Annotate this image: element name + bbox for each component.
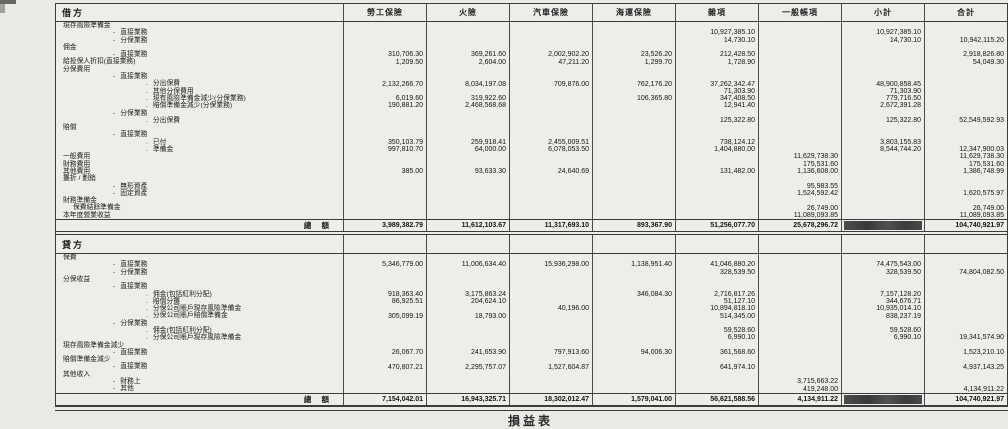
- column-rule-cell: [343, 235, 426, 253]
- total-cell-value: 25,678,296.72: [758, 220, 841, 231]
- cell-value: 1,136,608.00: [758, 168, 841, 175]
- total-cell-value: 3,989,382.79: [343, 220, 426, 231]
- cell-value: [426, 269, 509, 276]
- cell-value: [758, 73, 841, 80]
- row-label: 攤折 / 劃銷: [56, 175, 343, 182]
- row-label-text: 分保業務: [120, 320, 147, 327]
- row-label: -分保業務: [56, 110, 343, 117]
- table-row: 保費: [56, 254, 1007, 261]
- cell-value: [841, 371, 924, 378]
- cell-value: [924, 131, 1007, 138]
- cell-value: [509, 212, 592, 219]
- income-statement-table: 借方 勞工保險火險汽車保險海運保險雜項一般帳項小計合計 現存風險準備金-直接業務…: [55, 3, 1008, 407]
- row-label: .佣金(包括紅利分配): [56, 291, 343, 298]
- cell-value: [509, 312, 592, 319]
- indent-bullet: .: [146, 312, 148, 319]
- indent-bullet: -: [113, 349, 115, 356]
- cell-value: [758, 305, 841, 312]
- indent-bullet: .: [146, 80, 148, 87]
- row-label: 現存風險準備金: [56, 22, 343, 29]
- cell-value: 11,089,093.85: [758, 212, 841, 219]
- cell-value: [509, 37, 592, 44]
- redaction-block: [844, 221, 922, 230]
- row-label: 財務費用: [56, 161, 343, 168]
- credit-section-header: 貸方: [56, 235, 343, 253]
- credit-rows: 保費-直接業務5,346,779.0011,006,634.4015,936,2…: [56, 254, 1007, 393]
- cell-value: 310,706.30: [343, 51, 426, 58]
- cell-value: 6,990.10: [675, 334, 758, 341]
- cell-value: [841, 58, 924, 65]
- cell-value: [758, 117, 841, 124]
- cell-value: 10,935,014.10: [841, 305, 924, 312]
- row-label-text: 分出保費: [153, 80, 180, 87]
- cell-value: 125,322.80: [675, 117, 758, 124]
- column-header: 海運保險: [592, 4, 675, 21]
- table-row: .分保公司賬戶現存風險準備金6,990.106,990.1019,341,574…: [56, 334, 1007, 341]
- cell-value: [426, 183, 509, 190]
- table-row: 佣金: [56, 44, 1007, 51]
- cell-value: [426, 66, 509, 73]
- row-label-text: 現存風險準備金: [63, 22, 111, 29]
- cell-value: [675, 197, 758, 204]
- cell-value: [426, 342, 509, 349]
- cell-value: [758, 44, 841, 51]
- row-label-text: 直接業務: [120, 131, 147, 138]
- cell-value: [592, 190, 675, 197]
- cell-value: [758, 334, 841, 341]
- cell-value: [343, 342, 426, 349]
- cell-value: [758, 363, 841, 370]
- cell-value: [675, 131, 758, 138]
- cell-value: 361,568.60: [675, 349, 758, 356]
- row-label-text: 其他收入: [63, 371, 90, 378]
- row-label: .已付: [56, 139, 343, 146]
- row-label: -直接業務: [56, 73, 343, 80]
- cell-value: 2,295,757.07: [426, 363, 509, 370]
- cell-value: 40,196.00: [509, 305, 592, 312]
- cell-value: [592, 44, 675, 51]
- cell-value: [758, 254, 841, 261]
- cell-value: [924, 80, 1007, 87]
- table-row: -固定資產1,524,592.421,620,575.97: [56, 190, 1007, 197]
- cell-value: [924, 73, 1007, 80]
- row-label-text: 其他: [120, 385, 134, 392]
- cell-value: [343, 161, 426, 168]
- cell-value: 18,793.00: [426, 312, 509, 319]
- row-label: -直接業務: [56, 261, 343, 268]
- cell-value: [343, 334, 426, 341]
- cell-value: [343, 110, 426, 117]
- row-label: -直接業務: [56, 131, 343, 138]
- row-label-text: 分保公司賬戶賠償準備金: [153, 312, 228, 319]
- indent-bullet: -: [113, 363, 115, 370]
- cell-value: [509, 385, 592, 392]
- cell-value: [509, 175, 592, 182]
- cell-value: [509, 44, 592, 51]
- cell-value: 12,347,900.03: [924, 146, 1007, 153]
- table-row: -分保業務328,539.50328,539.5074,804,082.50: [56, 269, 1007, 276]
- cell-value: [343, 276, 426, 283]
- table-row: -其他419,248.004,134,911.22: [56, 385, 1007, 392]
- cell-value: [924, 305, 1007, 312]
- cell-value: [841, 363, 924, 370]
- scan-artifact: [0, 4, 5, 13]
- cell-value: [675, 124, 758, 131]
- cell-value: 41,046,880.20: [675, 261, 758, 268]
- cell-value: [924, 254, 1007, 261]
- cell-value: 204,624.10: [426, 298, 509, 305]
- cell-value: 305,099.19: [343, 312, 426, 319]
- cell-value: [426, 212, 509, 219]
- cell-value: [592, 22, 675, 29]
- cell-value: 93,633.30: [426, 168, 509, 175]
- cell-value: [924, 312, 1007, 319]
- cell-value: [592, 139, 675, 146]
- cell-value: [592, 117, 675, 124]
- table-row: 其他費用385.0093,633.3024,640.69131,482.001,…: [56, 168, 1007, 175]
- indent-bullet: -: [113, 29, 115, 36]
- cell-value: 514,345.00: [675, 312, 758, 319]
- cell-value: [592, 327, 675, 334]
- cell-value: [924, 183, 1007, 190]
- row-label-text: 直接業務: [120, 29, 147, 36]
- table-row: .分保公司賬戶賠償準備金305,099.1918,793.00514,345.0…: [56, 312, 1007, 319]
- cell-value: [592, 197, 675, 204]
- cell-value: 10,894,818.10: [675, 305, 758, 312]
- cell-value: [924, 320, 1007, 327]
- cell-value: [924, 291, 1007, 298]
- cell-value: 106,365.80: [592, 95, 675, 102]
- cell-value: [841, 51, 924, 58]
- cell-value: [592, 276, 675, 283]
- cell-value: [509, 269, 592, 276]
- cell-value: [509, 254, 592, 261]
- cell-value: [426, 385, 509, 392]
- total-cell-value: 7,154,042.01: [343, 394, 426, 405]
- cell-value: [924, 44, 1007, 51]
- cell-value: [675, 385, 758, 392]
- cell-value: [675, 283, 758, 290]
- cell-value: [343, 356, 426, 363]
- cell-value: [509, 73, 592, 80]
- cell-value: [343, 320, 426, 327]
- indent-bullet: .: [146, 88, 148, 95]
- cell-value: [924, 378, 1007, 385]
- cell-value: [426, 197, 509, 204]
- cell-value: [758, 146, 841, 153]
- cell-value: [924, 66, 1007, 73]
- cell-value: [509, 88, 592, 95]
- cell-value: 797,913.60: [509, 349, 592, 356]
- cell-value: 838,237.19: [841, 312, 924, 319]
- row-label: -其他: [56, 385, 343, 392]
- cell-value: 1,728.90: [675, 58, 758, 65]
- cell-value: [841, 124, 924, 131]
- cell-value: [675, 371, 758, 378]
- row-label: -分保業務: [56, 269, 343, 276]
- cell-value: [758, 269, 841, 276]
- indent-bullet: .: [146, 102, 148, 109]
- cell-value: 6,990.10: [841, 334, 924, 341]
- row-label-text: 佣金(包括紅利分配): [153, 291, 212, 298]
- cell-value: [509, 131, 592, 138]
- cell-value: 2,604.00: [426, 58, 509, 65]
- row-label: 佣金: [56, 44, 343, 51]
- row-label-text: 直接業務: [120, 261, 147, 268]
- debit-rows: 現存風險準備金-直接業務10,927,385.1010,927,385.10-分…: [56, 22, 1007, 219]
- cell-value: 94,006.30: [592, 349, 675, 356]
- cell-value: [675, 110, 758, 117]
- cell-value: [592, 334, 675, 341]
- table-row: .分出保費125,322.80125,322.8052,549,592.93: [56, 117, 1007, 124]
- cell-value: 59,528.60: [675, 327, 758, 334]
- cell-value: [343, 204, 426, 211]
- cell-value: [675, 356, 758, 363]
- row-label-text: 直接業務: [120, 349, 147, 356]
- row-label-text: 保費結餘準備金: [73, 204, 121, 211]
- cell-value: 1,524,592.42: [758, 190, 841, 197]
- indent-bullet: .: [146, 95, 148, 102]
- cell-value: [675, 204, 758, 211]
- cell-value: 11,089,093.85: [924, 212, 1007, 219]
- total-cell-value: 893,367.90: [592, 220, 675, 231]
- total-cell-value: 104,740,921.97: [924, 394, 1007, 405]
- table-row: .佣金(包括紅利分配)918,363.403,175,863.24346,084…: [56, 291, 1007, 298]
- cell-value: 37,262,342.47: [675, 80, 758, 87]
- table-row: -分保業務: [56, 320, 1007, 327]
- cell-value: [758, 320, 841, 327]
- cell-value: [841, 320, 924, 327]
- cell-value: 74,475,543.00: [841, 261, 924, 268]
- cell-value: [426, 356, 509, 363]
- row-label: -無形資產: [56, 183, 343, 190]
- cell-value: [841, 66, 924, 73]
- cell-value: 71,303.90: [675, 88, 758, 95]
- table-row: 其他收入: [56, 371, 1007, 378]
- row-label: 現存風險準備金減少: [56, 342, 343, 349]
- cell-value: [675, 22, 758, 29]
- cell-value: [592, 378, 675, 385]
- cell-value: 328,539.50: [841, 269, 924, 276]
- cell-value: [343, 117, 426, 124]
- column-rule-cell: [841, 235, 924, 253]
- cell-value: [592, 305, 675, 312]
- cell-value: [592, 320, 675, 327]
- cell-value: [924, 29, 1007, 36]
- cell-value: 350,103.79: [343, 139, 426, 146]
- cell-value: [509, 298, 592, 305]
- cell-value: [758, 349, 841, 356]
- row-label-text: 直接業務: [120, 283, 147, 290]
- cell-value: [426, 204, 509, 211]
- cell-value: [592, 110, 675, 117]
- cell-value: 5,346,779.00: [343, 261, 426, 268]
- indent-bullet: .: [146, 334, 148, 341]
- table-row: 現存風險準備金: [56, 22, 1007, 29]
- cell-value: [426, 29, 509, 36]
- cell-value: [758, 175, 841, 182]
- cell-value: [924, 22, 1007, 29]
- cell-value: [343, 175, 426, 182]
- cell-value: [924, 102, 1007, 109]
- table-row: -直接業務5,346,779.0011,006,634.4015,936,298…: [56, 261, 1007, 268]
- cell-value: 2,468,568.68: [426, 102, 509, 109]
- cell-value: [343, 197, 426, 204]
- table-row: 賠償準備金減少: [56, 356, 1007, 363]
- cell-value: 1,386,748.99: [924, 168, 1007, 175]
- cell-value: [841, 342, 924, 349]
- row-label: -直接業務: [56, 29, 343, 36]
- cell-value: [758, 327, 841, 334]
- row-label: 分保收益: [56, 276, 343, 283]
- row-label: .分出保費: [56, 117, 343, 124]
- cell-value: [426, 276, 509, 283]
- row-label-text: 其他分保費用: [153, 88, 194, 95]
- cell-value: [758, 312, 841, 319]
- cell-value: [592, 131, 675, 138]
- cell-value: [675, 44, 758, 51]
- cell-value: [426, 88, 509, 95]
- table-row: 財務準備金: [56, 197, 1007, 204]
- cell-value: [924, 276, 1007, 283]
- indent-bullet: -: [113, 261, 115, 268]
- cell-value: [592, 356, 675, 363]
- column-header: 汽車保險: [509, 4, 592, 21]
- cell-value: [841, 44, 924, 51]
- indent-bullet: -: [113, 320, 115, 327]
- redaction-block: [844, 395, 922, 404]
- cell-value: 74,804,082.50: [924, 269, 1007, 276]
- cell-value: [924, 261, 1007, 268]
- cell-value: [592, 168, 675, 175]
- row-label: -財務上: [56, 378, 343, 385]
- cell-value: [758, 342, 841, 349]
- cell-value: [509, 95, 592, 102]
- total-cell-value: 18,302,012.47: [509, 394, 592, 405]
- table-row: 分保收益: [56, 276, 1007, 283]
- cell-value: [426, 378, 509, 385]
- column-header: 勞工保險: [343, 4, 426, 21]
- row-label-text: 分保公司賬戶現存風險準備金: [153, 334, 241, 341]
- cell-value: [592, 66, 675, 73]
- indent-bullet: .: [146, 305, 148, 312]
- cell-value: [343, 269, 426, 276]
- cell-value: [509, 291, 592, 298]
- table-row: -分保業務14,730.1014,730.1010,942,115.20: [56, 37, 1007, 44]
- cell-value: [592, 102, 675, 109]
- row-label-text: 賠償分攤: [153, 298, 180, 305]
- row-label-text: 一般費用: [63, 153, 90, 160]
- total-cell-value: 104,740,921.97: [924, 220, 1007, 231]
- cell-value: [426, 190, 509, 197]
- cell-value: [343, 183, 426, 190]
- cell-value: [509, 183, 592, 190]
- cell-value: [675, 190, 758, 197]
- indent-bullet: -: [113, 110, 115, 117]
- cell-value: [592, 283, 675, 290]
- credit-total-row: 總 額 7,154,042.0116,943,325.7118,302,012.…: [56, 393, 1007, 406]
- cell-value: [343, 29, 426, 36]
- table-row: 賠償: [56, 124, 1007, 131]
- cell-value: 15,936,298.00: [509, 261, 592, 268]
- cell-value: 190,881.20: [343, 102, 426, 109]
- cell-value: [924, 139, 1007, 146]
- table-caption: 損益表: [55, 412, 1006, 429]
- table-row: 本年度營業收益11,089,093.8511,089,093.85: [56, 212, 1007, 219]
- cell-value: [758, 261, 841, 268]
- indent-bullet: .: [146, 139, 148, 146]
- cell-value: [675, 254, 758, 261]
- cell-value: [509, 356, 592, 363]
- cell-value: [592, 37, 675, 44]
- cell-value: 347,408.50: [675, 95, 758, 102]
- cell-value: 131,482.00: [675, 168, 758, 175]
- cell-value: 175,531.60: [924, 161, 1007, 168]
- cell-value: [841, 153, 924, 160]
- cell-value: [924, 298, 1007, 305]
- cell-value: [924, 356, 1007, 363]
- row-label: 保費: [56, 254, 343, 261]
- cell-value: 997,810.70: [343, 146, 426, 153]
- cell-value: 14,730.10: [675, 37, 758, 44]
- cell-value: [343, 124, 426, 131]
- indent-bullet: -: [113, 131, 115, 138]
- cell-value: [675, 378, 758, 385]
- cell-value: [675, 342, 758, 349]
- column-header: 雜項: [675, 4, 758, 21]
- cell-value: 470,807.21: [343, 363, 426, 370]
- cell-value: 19,341,574.90: [924, 334, 1007, 341]
- row-label-text: 賠償: [63, 124, 77, 131]
- cell-value: [426, 371, 509, 378]
- redacted-cell: [841, 394, 924, 405]
- column-rule-cell: [675, 235, 758, 253]
- cell-value: [426, 161, 509, 168]
- cell-value: [841, 197, 924, 204]
- cell-value: [924, 124, 1007, 131]
- cell-value: [592, 153, 675, 160]
- cell-value: [675, 153, 758, 160]
- cell-value: [509, 66, 592, 73]
- cell-value: [758, 66, 841, 73]
- table-row: -直接業務: [56, 131, 1007, 138]
- table-row: 現存風險準備金減少: [56, 342, 1007, 349]
- cell-value: [343, 37, 426, 44]
- cell-value: [841, 356, 924, 363]
- row-label-text: 本年度營業收益: [63, 212, 111, 219]
- row-label: -分保業務: [56, 320, 343, 327]
- row-label-text: 固定資產: [120, 190, 147, 197]
- cell-value: 54,049.30: [924, 58, 1007, 65]
- cell-value: [343, 66, 426, 73]
- table-row: .分出保費2,132,266.708,034,197.08709,876.007…: [56, 80, 1007, 87]
- column-rule-cell: [509, 235, 592, 253]
- cell-value: [509, 327, 592, 334]
- redacted-cell: [841, 220, 924, 231]
- cell-value: 641,974.10: [675, 363, 758, 370]
- cell-value: [758, 124, 841, 131]
- cell-value: [343, 254, 426, 261]
- cell-value: 2,672,391.28: [841, 102, 924, 109]
- cell-value: [426, 305, 509, 312]
- cell-value: [592, 385, 675, 392]
- table-row: 分保費用: [56, 66, 1007, 73]
- cell-value: 11,629,738.30: [924, 153, 1007, 160]
- cell-value: [841, 131, 924, 138]
- cell-value: [592, 204, 675, 211]
- cell-value: [509, 117, 592, 124]
- row-label: -直接業務: [56, 363, 343, 370]
